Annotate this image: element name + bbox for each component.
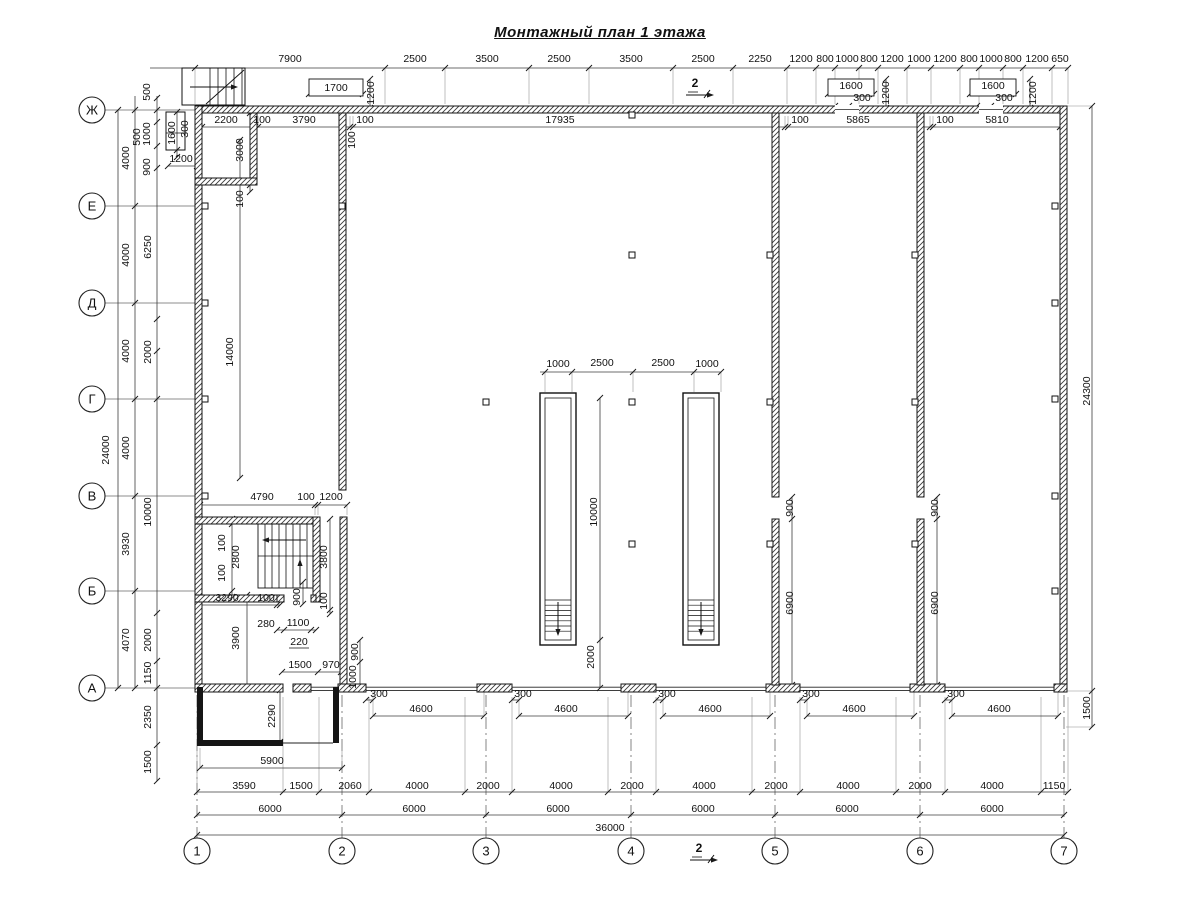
dim-label: 3500 [619,53,643,65]
dim-label: 100 [346,131,358,149]
wall-segment [1060,106,1067,691]
dim-label: 7900 [278,53,302,65]
dim-label: 300 [658,688,676,700]
dim-label: 6000 [835,803,859,815]
dim-label: 100 [234,190,246,208]
dim-label: 2350 [142,705,154,729]
axis-marker-4: 4 [618,838,644,864]
dim-label: 4000 [120,339,132,363]
dim-label: 100 [216,534,228,552]
dim-label: 3930 [120,532,132,556]
dim-label: 100 [297,491,315,503]
dim-label: 6000 [258,803,282,815]
dim-label: 1500 [142,750,154,774]
dim-label: 1150 [1043,780,1066,792]
dim-label: 500 [141,83,153,101]
axis-label: Д [88,296,97,311]
dim-label: 4000 [980,780,1004,792]
dim-label: 100 [318,592,330,610]
wall-segment [311,595,316,602]
dim-label: 36000 [595,822,624,834]
dim-label: 100 [791,114,809,126]
dim-label: 300 [995,92,1013,104]
axis-marker-Г: Г [79,386,105,412]
floor-plan-canvas: 22 7900250035002500350025002250120080010… [0,0,1200,900]
axis-marker-В: В [79,483,105,509]
dim-label: 5900 [260,755,284,767]
dim-label: 6000 [691,803,715,815]
axis-label: В [88,489,97,504]
dim-label: 1200 [880,81,892,105]
dim-label: 6000 [546,803,570,815]
dim-label: 10000 [588,497,600,526]
dim-label: 1200 [319,491,343,503]
dim-label: 14000 [224,337,236,366]
axis-marker-Ж: Ж [79,97,105,123]
wall-segment [339,113,346,490]
dim-label: 1200 [789,53,813,65]
dim-label: 1600 [981,80,1005,92]
dim-label: 3500 [475,53,499,65]
dim-label: 1200 [933,53,957,65]
wall-segment [293,684,311,692]
dim-label: 800 [860,53,878,65]
column-marker [202,300,208,306]
axis-label: 4 [627,844,634,859]
dim-label: 300 [179,120,191,138]
dim-label: 100 [257,592,275,604]
column-marker [767,541,773,547]
dim-label: 6900 [784,591,796,615]
dock-wall [197,687,203,745]
dim-label: 2500 [403,53,427,65]
dim-label: 6250 [142,235,154,259]
dim-label: 800 [816,53,834,65]
dim-label: 5865 [846,114,870,126]
column-marker [202,396,208,402]
dim-label: 17935 [545,114,574,126]
column-marker [1052,588,1058,594]
column-marker [1052,493,1058,499]
axis-label: Е [88,199,97,214]
dim-label: 24000 [100,435,112,464]
dim-label: 4790 [250,491,274,503]
axis-marker-А: А [79,675,105,701]
wall-segment [910,684,945,692]
axis-marker-Е: Е [79,193,105,219]
dim-label: 3290 [215,592,239,604]
dim-label: 1600 [839,80,863,92]
dim-label: 3790 [292,114,316,126]
section-marker: 2 [696,841,703,855]
dim-label: 24300 [1081,376,1093,405]
dim-label: 2500 [547,53,571,65]
wall-segment [477,684,512,692]
dim-label: 1000 [979,53,1003,65]
wall-segment [340,517,347,684]
column-marker [629,252,635,258]
axis-marker-6: 6 [907,838,933,864]
dim-label: 1150 [142,662,154,685]
axis-label: 3 [482,844,489,859]
axis-marker-Д: Д [79,290,105,316]
axis-label: 7 [1060,844,1067,859]
walls [195,105,1067,746]
dim-label: 1500 [288,659,312,671]
dim-label: 300 [947,688,965,700]
dim-label: 4070 [120,628,132,652]
dim-label: 4600 [554,703,578,715]
axis-label: 5 [771,844,778,859]
axis-label: Г [88,392,95,407]
axis-label: 6 [916,844,923,859]
axis-label: 1 [193,844,200,859]
dim-label: 1000 [835,53,859,65]
dim-label: 4000 [120,436,132,460]
dim-label: 1500 [1081,696,1093,720]
axis-label: 2 [338,844,345,859]
axis-marker-5: 5 [762,838,788,864]
dim-label: 280 [257,618,275,630]
dim-label: 2800 [230,545,242,569]
column-marker [1052,203,1058,209]
dim-label: 2500 [691,53,715,65]
dim-label: 4600 [987,703,1011,715]
dim-label: 2000 [142,340,154,364]
dim-label: 1100 [287,617,310,629]
dim-label: 4000 [836,780,860,792]
dim-label: 300 [802,688,820,700]
dim-label: 2500 [590,357,614,369]
axis-marker-2: 2 [329,838,355,864]
dim-label: 4000 [120,146,132,170]
dim-label: 1200 [880,53,904,65]
dock-wall [197,740,283,746]
column-marker [1052,300,1058,306]
dim-label: 300 [514,688,532,700]
dimension-lines [115,65,1095,838]
dim-label: 3800 [318,545,330,569]
dim-label: 220 [290,636,308,648]
dim-label: 4000 [405,780,429,792]
dim-label: 4600 [698,703,722,715]
dim-label: 650 [1051,53,1069,65]
dim-label: 900 [141,158,153,176]
dim-label: 900 [784,499,796,517]
dim-label: 800 [1004,53,1022,65]
dim-label: 2250 [748,53,772,65]
column-marker [629,541,635,547]
dim-label: 10000 [142,497,154,526]
dim-label: 1000 [347,665,359,689]
column-marker [202,493,208,499]
dim-label: 4600 [842,703,866,715]
dim-label: 1000 [141,122,153,146]
drawing-sheet: Монтажный план 1 этажа 22 79002500350025… [0,0,1200,900]
axis-label: Ж [86,103,98,118]
column-marker [767,399,773,405]
axis-marker-7: 7 [1051,838,1077,864]
dim-label: 2060 [338,780,362,792]
dim-label: 2200 [214,114,238,126]
dim-label: 2500 [651,357,675,369]
dim-label: 300 [370,688,388,700]
dim-label: 100 [216,564,228,582]
dim-label: 2000 [908,780,932,792]
dim-label: 1000 [695,358,719,370]
dim-label: 100 [936,114,954,126]
dim-label: 6000 [402,803,426,815]
column-marker [629,399,635,405]
dim-label: 5810 [985,114,1009,126]
wall-segment [621,684,656,692]
dim-label: 1200 [169,153,193,165]
dim-label: 2290 [266,704,278,728]
axis-marker-3: 3 [473,838,499,864]
dim-label: 2000 [620,780,644,792]
axis-label: А [88,681,97,696]
dim-label: 1700 [324,82,348,94]
dim-label: 800 [960,53,978,65]
wall-segment [277,595,284,602]
dim-label: 1200 [365,81,377,105]
dim-label: 3900 [230,626,242,650]
dim-label: 1600 [166,121,178,145]
dim-label: 900 [291,588,303,606]
dim-label: 4000 [549,780,573,792]
dim-label: 2000 [476,780,500,792]
wall-segment [917,113,924,497]
dim-label: 1000 [907,53,931,65]
dim-label: 2000 [585,645,597,669]
dim-label: 1200 [1025,53,1049,65]
dim-label: 3000 [234,138,246,162]
column-marker [629,112,635,118]
column-marker [339,203,345,209]
wall-segment [772,113,779,497]
wall-segment [195,517,320,524]
dim-label: 970 [322,659,340,671]
column-marker [912,252,918,258]
dimension-labels: 7900250035002500350025002250120080010008… [100,53,1093,834]
wall-segment [195,106,202,691]
dim-label: 1000 [546,358,570,370]
wall-segment [195,178,257,185]
extension-lines [195,68,1092,792]
dim-label: 300 [853,92,871,104]
section-marker: 2 [692,76,699,90]
dim-label: 4000 [120,243,132,267]
axis-label: Б [88,584,97,599]
wall-segment [195,684,283,692]
dim-label: 100 [253,114,271,126]
column-marker [483,399,489,405]
dim-label: 6900 [929,591,941,615]
column-marker [202,203,208,209]
dim-label: 4000 [692,780,716,792]
column-marker [767,252,773,258]
dock-wall [333,687,339,743]
dim-label: 1200 [1027,81,1039,105]
dim-label: 1500 [289,780,313,792]
column-marker [1052,396,1058,402]
axis-marker-1: 1 [184,838,210,864]
axis-marker-Б: Б [79,578,105,604]
wall-segment [766,684,800,692]
dim-label: 900 [349,643,361,661]
dim-label: 2000 [142,628,154,652]
dim-label: 6000 [980,803,1004,815]
dim-label: 4600 [409,703,433,715]
dim-label: 2000 [764,780,788,792]
axis-markers: ЖЕДГВБА1234567 [79,97,1077,864]
column-marker [912,541,918,547]
dim-label: 900 [929,499,941,517]
dim-label: 3590 [232,780,256,792]
wall-segment [1054,684,1067,692]
column-marker [912,399,918,405]
dim-label: 100 [356,114,374,126]
